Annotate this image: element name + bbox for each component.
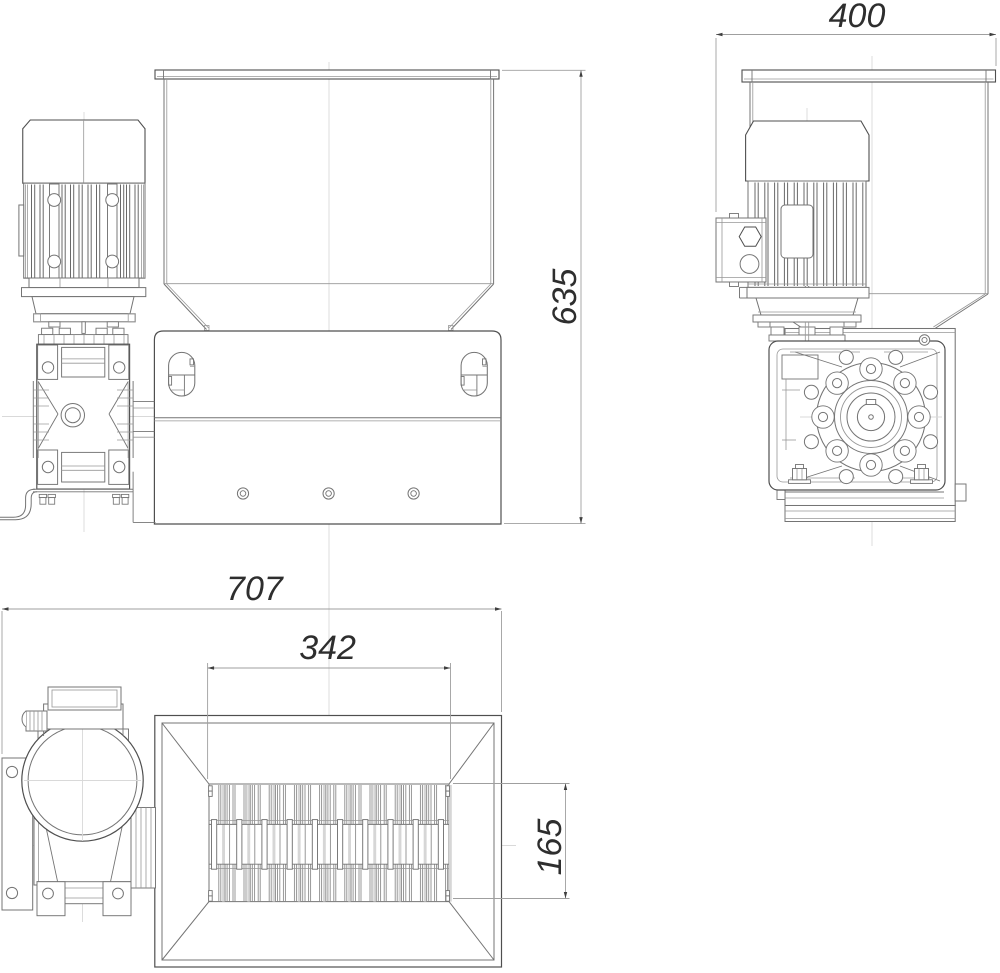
- svg-text:400: 400: [829, 0, 886, 35]
- svg-text:707: 707: [226, 570, 284, 608]
- svg-text:165: 165: [531, 819, 569, 876]
- svg-text:342: 342: [299, 629, 356, 667]
- svg-text:635: 635: [546, 269, 584, 326]
